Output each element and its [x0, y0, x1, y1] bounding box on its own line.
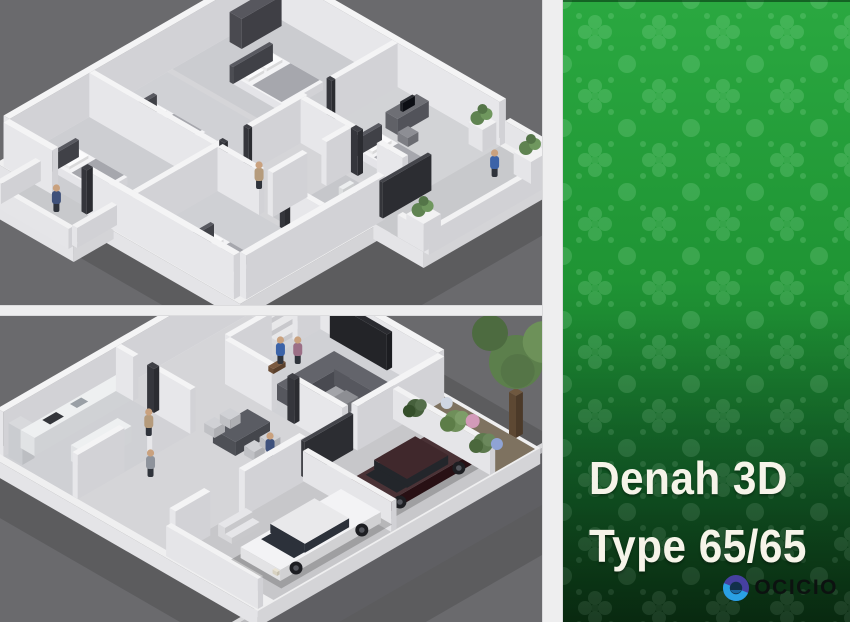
horizontal-divider — [0, 305, 542, 316]
ground-floor-panel — [0, 316, 542, 622]
headline-line1: Denah 3D — [589, 444, 807, 512]
ground-floorplan-illustration — [0, 316, 542, 622]
upper-floor-panel — [0, 0, 542, 305]
property-poster: Denah 3D Type 65/65 OCICIO — [0, 0, 850, 622]
brand-name: OCICIO — [754, 576, 838, 600]
brand-logo: OCICIO — [722, 574, 838, 602]
headline: Denah 3D Type 65/65 — [589, 444, 807, 580]
promo-panel: Denah 3D Type 65/65 OCICIO — [563, 0, 850, 622]
upper-floorplan-illustration — [0, 0, 542, 305]
headline-line2: Type 65/65 — [589, 512, 807, 580]
ocicio-logo-icon — [722, 574, 750, 602]
vertical-divider — [542, 0, 563, 622]
